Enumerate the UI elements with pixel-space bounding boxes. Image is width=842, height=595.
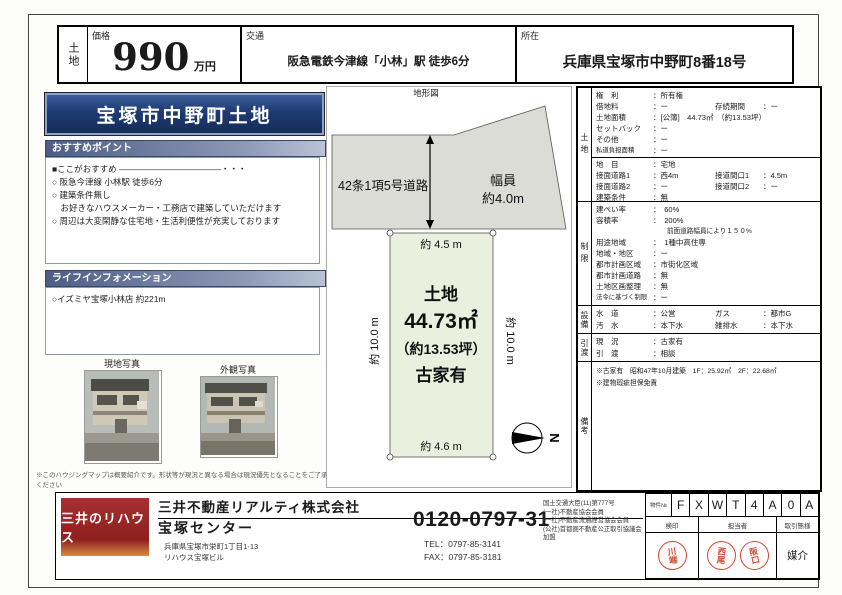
details-section-restrictions: 制限 建ぺい率： 60% 容積率： 200% 前面道路幅員により１５０% 用途地… [578,201,820,305]
detail-label: 地域・地区 [596,248,653,259]
detail-label: 私道負担面積 [596,145,653,156]
stamp-col-header-torihiki: 取引態様 [777,517,818,532]
code-char: T [726,494,744,516]
detail-row: 土地面積：[公簿] 44.73㎡ （約13.53坪） [592,112,820,123]
compass-n-label: N [547,433,562,442]
detail-row: 地域・地区：ー [592,248,820,259]
life-info-header-bar: ライフインフォメーション [45,270,326,287]
road-label: 42条1項5号道路 [338,178,429,193]
detail-label: 土地面積 [596,112,653,123]
office-address-line1: 兵庫県宝塚市栄町1丁目1-13 [164,541,258,552]
detail-value: ：ー [763,101,820,112]
road-width-value: 約4.0m [482,191,524,206]
detail-value: ：相談 [653,348,820,360]
code-char: 0 [781,494,799,516]
detail-value: ：ー [763,181,820,192]
detail-value: ： 60% [653,204,820,215]
detail-label: 都市計画道路 [596,270,653,281]
detail-value: ：ー [653,292,820,303]
header-table: 土地 価格 990 万円 交通 阪急電鉄今津線「小林」駅 徒歩6分 所在 兵庫県… [57,25,794,84]
detail-value: ：無 [653,192,820,201]
detail-value: ：都市G [763,308,820,320]
detail-row: セットバック：ー [592,123,820,134]
detail-label: 汚 水 [596,320,653,332]
detail-value: ： 1種中高住専 [653,237,820,248]
detail-value: ：西4m [653,170,715,181]
detail-label: 接面道路2 [596,181,653,192]
detail-value: ※古家有 昭和47年10月建築 1F：25.92㎡ 2F：22.68㎡ [596,366,820,378]
detail-value: ：古家有 [653,336,820,348]
price-unit: 万円 [194,61,216,73]
detail-row: 接面道路2：ー接道間口2：ー [592,181,820,192]
detail-value: ：所有権 [653,90,820,101]
detail-value: ※建物瑕疵担保免責 [596,378,820,390]
hanko-stamp: 川端 [656,539,689,572]
detail-value: ：ー [653,248,820,259]
site-photo-image [85,371,159,461]
section-side-label: 備考 [578,362,592,490]
detail-value: ：ー [653,134,820,145]
section-side-label: 土地 [578,88,592,201]
code-char: X [689,494,707,516]
detail-row: 現 況：古家有 [592,336,820,348]
parcel-area-line2: 44.73㎡ [404,309,478,333]
fax-number: FAX：0797-85-3181 [424,551,502,563]
code-table: 物件№ F X W T 4 A 0 A 検印 担当者 取引態様 川端 西尾 阪口… [645,493,819,579]
detail-value: ：[公簿] 44.73㎡ （約13.53坪） [653,112,820,123]
section-side-label: 制限 [578,202,592,305]
detail-label: 接面道路1 [596,170,653,181]
detail-value: 前面道路幅員により１５０% [653,226,820,237]
detail-label: ガス [715,308,763,320]
hanko-stamp: 阪口 [737,538,771,572]
code-char: F [671,494,689,516]
dim-left: 約 10.0 m [367,317,381,365]
details-section-utilities: 設備 水 道：公営ガス：都市G 汚 水：本下水雑排水：本下水 [578,305,820,333]
detail-label: 建築条件 [596,192,653,201]
recommend-point: ○ 周辺は大変閑静な住宅地・生活利便性が充実しております [52,215,313,228]
price-value: 990 [112,35,189,79]
license-line: (一社)不動産流通経営協会会員 [543,517,643,526]
detail-row: 用途地域： 1種中高住専 [592,237,820,248]
code-char: A [763,494,781,516]
detail-value: ：公営 [653,308,715,320]
diagram-title: 地形図 [413,88,439,98]
license-block: 国土交通大臣(11)第777号 (一社)不動産協会会員 (一社)不動産流通経営協… [543,500,643,543]
detail-row: 引 渡：相談 [592,348,820,360]
phone-number: 0120-0797-31 [413,508,550,532]
divider [592,157,820,158]
details-section-remarks: 備考 ※古家有 昭和47年10月建築 1F：25.92㎡ 2F：22.68㎡ ※… [578,361,820,490]
detail-label: 水 道 [596,308,653,320]
detail-row: 地 目：宅地 [592,159,820,170]
recommend-intro: ■ここがおすすめ ――――――――――――・・・ [52,163,313,176]
detail-label: 権 利 [596,90,653,101]
detail-value: ：無 [653,281,820,292]
detail-value: ：本下水 [763,320,820,332]
code-row: 物件№ F X W T 4 A 0 A [646,494,818,517]
life-info-item: ○イズミヤ宝塚小林店 約221m [52,293,313,306]
detail-row: 私道負担面積：ー [592,145,820,156]
detail-row: 建ぺい率： 60% [592,204,820,215]
detail-value: ： 200% [653,215,820,226]
detail-label: 建ぺい率 [596,204,653,215]
office-name: 宝塚センター [158,518,254,538]
property-type-label: 土地 [65,42,81,68]
code-char: A [800,494,818,516]
dim-right: 約 10.0 m [504,317,518,365]
detail-row: 汚 水：本下水雑排水：本下水 [592,320,820,332]
hanko-stamp: 西尾 [705,540,737,572]
license-line: (一社)不動産協会会員 [543,509,643,518]
detail-row: ※建物瑕疵担保免責 [592,378,820,390]
recommend-point: ○ 建築条件無し [52,189,313,202]
detail-row: ※古家有 昭和47年10月建築 1F：25.92㎡ 2F：22.68㎡ [592,366,820,378]
exterior-photo-label: 外観写真 [200,363,276,376]
detail-row: 土地区画整理：無 [592,281,820,292]
recommend-point: お好きなハウスメーカー・工務店で建築していただけます [52,202,313,215]
parcel-area-line3: （約13.53坪） [395,341,486,357]
detail-label: 借地料 [596,101,653,112]
office-address-line2: リハウス宝塚ビル [164,552,224,563]
access-value: 阪急電鉄今津線「小林」駅 徒歩6分 [242,53,515,69]
detail-label: 接道間口2 [715,181,763,192]
transaction-type: 媒介 [777,533,818,578]
stamp-header-row: 検印 担当者 取引態様 [646,517,818,533]
detail-label: 地 目 [596,159,653,170]
location-value: 兵庫県宝塚市中野町8番18号 [517,51,792,72]
detail-label: 用途地域 [596,237,653,248]
site-photo-label: 現地写真 [84,357,160,370]
detail-label: 都市計画区域 [596,259,653,270]
detail-label: 雑排水 [715,320,763,332]
details-section-land: 土地 権 利：所有権 借地料：ー存続期間：ー 土地面積：[公簿] 44.73㎡ … [578,88,820,201]
detail-label: 現 況 [596,336,653,348]
section-side-label: 設備 [578,306,592,333]
detail-label [596,226,653,237]
detail-row: 法令に基づく制限：ー [592,292,820,303]
site-diagram: 地形図 42条1項5号道路 幅員 約4.0m 約 4.5 m 約 4.6 m 約… [326,86,572,488]
detail-row: 水 道：公営ガス：都市G [592,308,820,320]
section-side-label: 引渡 [578,334,592,361]
detail-label: 土地区画整理 [596,281,653,292]
code-char: W [708,494,726,516]
detail-label: 引 渡 [596,348,653,360]
license-line: 国土交通大臣(11)第777号 [543,500,643,509]
detail-value: ：無 [653,270,820,281]
exterior-photo [200,376,278,458]
location-label: 所在 [521,29,539,42]
detail-row: 借地料：ー存続期間：ー [592,101,820,112]
license-line: (公社)首都圏不動産公正取引協議会加盟 [543,526,643,543]
detail-label: その他 [596,134,653,145]
life-info-box: ○イズミヤ宝塚小林店 約221m [45,287,320,355]
detail-value: ：ー [653,123,820,134]
detail-value: ：本下水 [653,320,715,332]
dim-bottom: 約 4.6 m [420,439,462,453]
code-label: 物件№ [646,494,671,516]
details-section-handover: 引渡 現 況：古家有 引 渡：相談 [578,333,820,361]
parcel-area-line4: 古家有 [416,365,467,385]
detail-row: 都市計画区域：市街化区域 [592,259,820,270]
map-disclaimer: ※このハウジングマップは概要紹介です。形状等が現況と異なる場合は現況優先となるこ… [36,469,332,489]
detail-value: ：4.5m [763,170,820,181]
dim-top: 約 4.5 m [420,237,462,251]
recommend-header-bar: おすすめポイント [45,140,326,157]
detail-label: 法令に基づく制限 [596,292,653,303]
detail-label: セットバック [596,123,653,134]
detail-label: 存続期間 [715,101,763,112]
detail-value: ：市街化区域 [653,259,820,270]
detail-label: 接道間口1 [715,170,763,181]
tel-number: TEL：0797-85-3141 [424,538,501,550]
recommend-box: ■ここがおすすめ ――――――――――――・・・ ○ 阪急今津線 小林駅 徒歩6… [45,157,320,264]
stamp-col-header-kenin: 検印 [646,517,699,532]
road-width-label: 幅員 [490,173,516,188]
detail-row: 権 利：所有権 [592,90,820,101]
property-flyer-page: 土地 価格 990 万円 交通 阪急電鉄今津線「小林」駅 徒歩6分 所在 兵庫県… [0,0,842,595]
detail-row: 前面道路幅員により１５０% [592,226,820,237]
detail-row: 建築条件：無 [592,192,820,201]
detail-row: 容積率： 200% [592,215,820,226]
property-title-banner: 宝塚市中野町土地 [45,93,324,135]
detail-row: その他：ー [592,134,820,145]
detail-value: ：ー [653,181,715,192]
detail-row: 接面道路1：西4m接道間口1：4.5m [592,170,820,181]
detail-value: ：ー [653,145,820,156]
exterior-photo-image [201,377,275,455]
parcel-area-line1: 土地 [424,284,458,304]
detail-value: ：宅地 [653,159,820,170]
rehouse-logo: 三井のリハウス [61,498,149,556]
detail-row: 都市計画道路：無 [592,270,820,281]
stamp-col-header-tantosha: 担当者 [699,517,777,532]
recommend-point: ○ 阪急今津線 小林駅 徒歩6分 [52,176,313,189]
detail-value: ：ー [653,101,715,112]
detail-label: 容積率 [596,215,653,226]
details-table: 土地 権 利：所有権 借地料：ー存続期間：ー 土地面積：[公簿] 44.73㎡ … [576,86,822,492]
stamp-row: 川端 西尾 阪口 媒介 [646,533,818,578]
site-photo [84,370,162,464]
access-label: 交通 [246,29,264,42]
code-char: 4 [745,494,763,516]
